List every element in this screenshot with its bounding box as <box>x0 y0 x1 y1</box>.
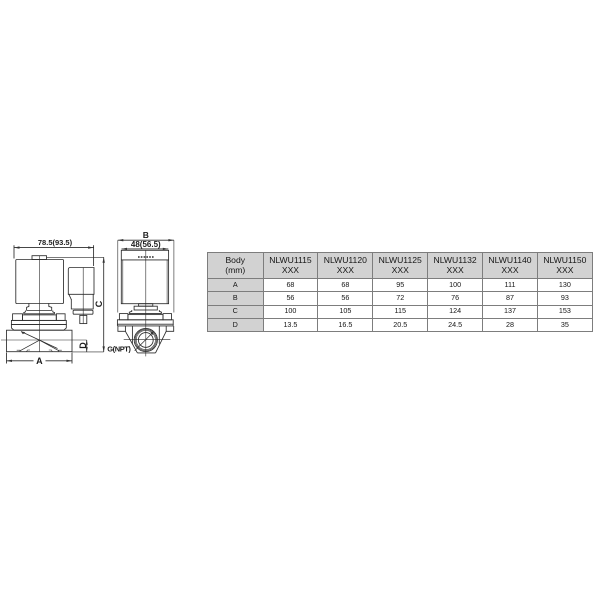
svg-text:D: D <box>78 342 88 349</box>
svg-text:B: B <box>143 230 149 240</box>
svg-text:G(NPT): G(NPT) <box>107 345 131 354</box>
svg-text:78.5(93.5): 78.5(93.5) <box>38 238 73 247</box>
svg-text:A: A <box>36 356 43 366</box>
svg-text:48(56.5): 48(56.5) <box>131 240 161 249</box>
svg-text:C: C <box>94 300 104 307</box>
